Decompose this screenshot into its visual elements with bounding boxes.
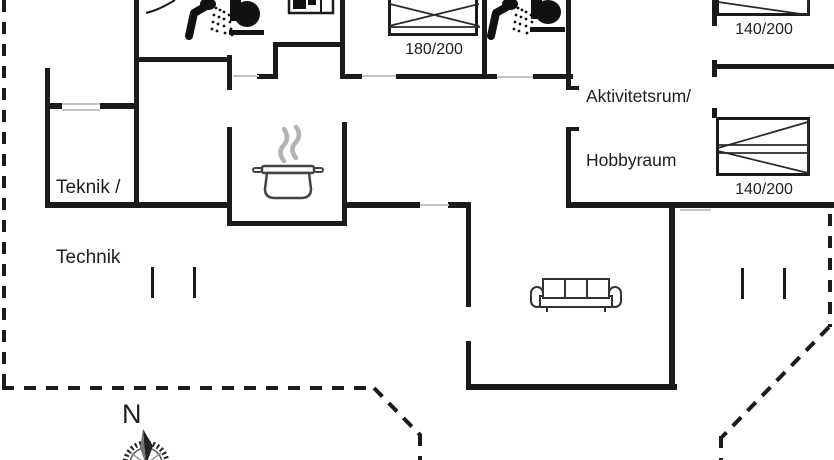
- shower-icon: [189, 0, 233, 36]
- icon-layer: [0, 0, 834, 460]
- room-label-teknik: Teknik / Technik: [56, 130, 120, 315]
- bed-size-label: 140/200: [714, 21, 814, 39]
- compass-north-label: N: [122, 399, 142, 430]
- shower-icon: [491, 0, 534, 36]
- compass-rose-icon: [125, 429, 167, 460]
- floor-plan: Teknik / Technik Aktivitetsrum/ Hobbyrau…: [0, 0, 834, 460]
- room-label-activity: Aktivitetsrum/ Hobbyraum: [586, 43, 691, 214]
- toilet-icon: [530, 0, 565, 32]
- door-swing-arc: [146, 0, 175, 13]
- room-label-activity-line1: Aktivitetsrum/: [586, 86, 691, 107]
- steam-icon: [293, 127, 300, 158]
- steam-icon: [281, 129, 288, 161]
- room-label-teknik-line1: Teknik /: [56, 176, 120, 199]
- washing-machine-icon: [289, 0, 333, 13]
- room-label-activity-line2: Hobbyraum: [586, 150, 691, 171]
- toilet-icon: [229, 0, 264, 35]
- terrace-dashed-diagonal-left: [374, 388, 421, 436]
- bed-size-label: 180/200: [386, 41, 482, 59]
- terrace-dashed-diagonal-right: [722, 327, 829, 437]
- sofa-icon: [531, 279, 621, 312]
- room-label-teknik-line2: Technik: [56, 246, 120, 269]
- bed-size-label: 140/200: [714, 181, 814, 199]
- cooking-pot-icon: [253, 127, 323, 198]
